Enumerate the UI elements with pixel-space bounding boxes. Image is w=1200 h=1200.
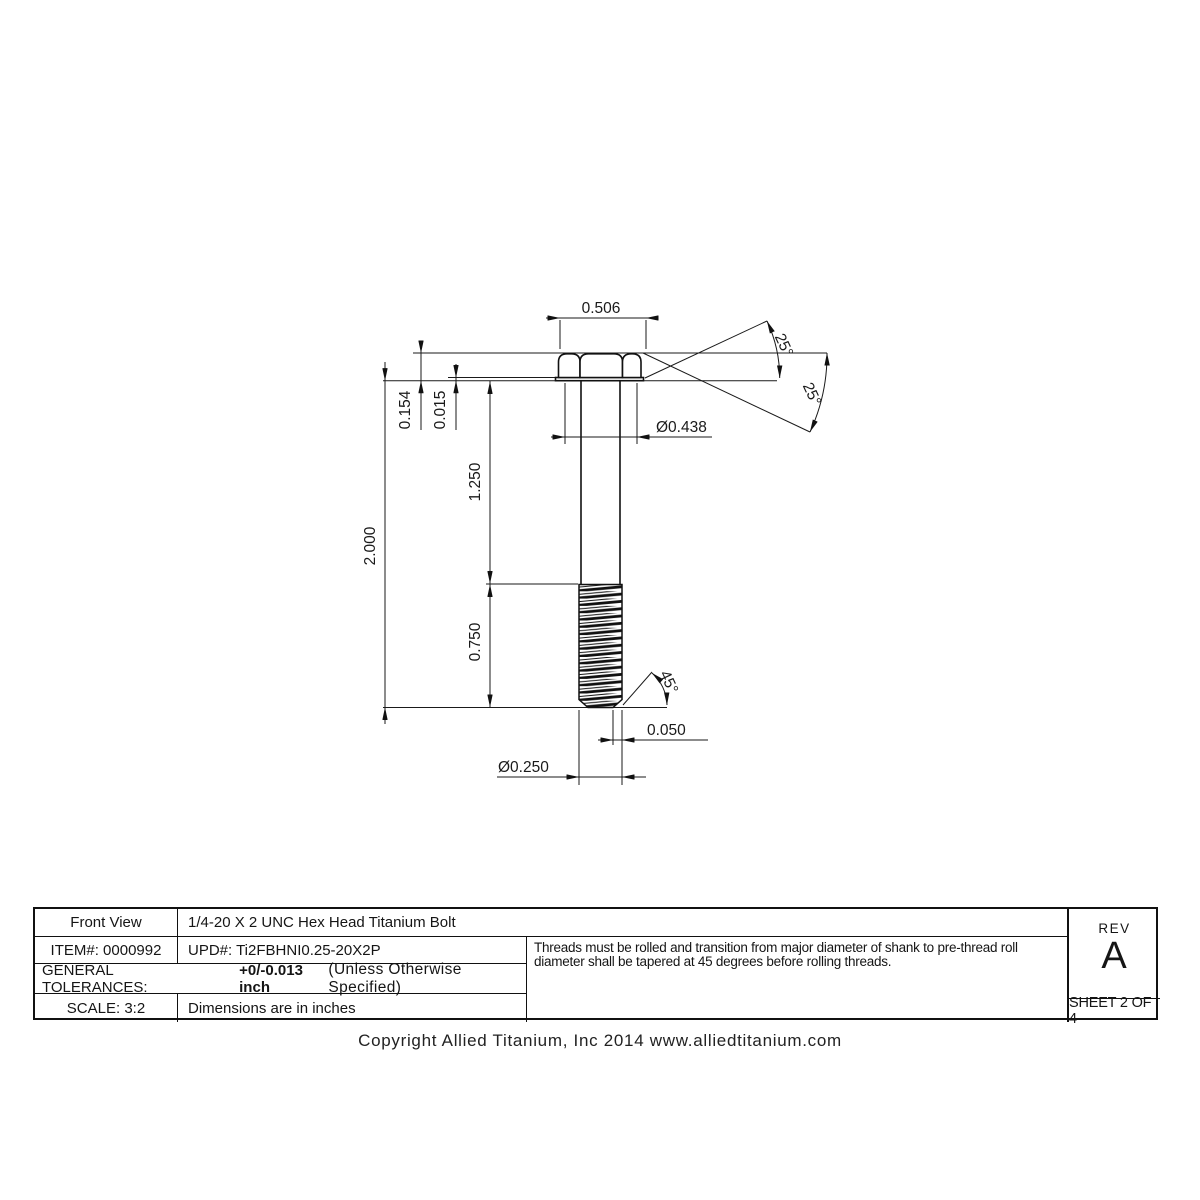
dim-text-head-width: 0.506: [582, 300, 621, 317]
dim-head-across-flats: Ø0.438: [551, 419, 712, 437]
rev-value: A: [1069, 937, 1160, 975]
tolerances-cell: GENERAL TOLERANCES: +0/-0.013 inch (Unle…: [35, 964, 527, 994]
rev-label: REV: [1069, 921, 1160, 936]
chamfer-angle-line-upper: [645, 321, 767, 378]
hex-head-facet-middle: [580, 354, 623, 378]
notes-cell: Threads must be rolled and transition fr…: [527, 937, 1067, 1022]
title-block: Front View 1/4-20 X 2 UNC Hex Head Titan…: [33, 907, 1158, 1020]
dim-head-across-corners: 0.506: [546, 300, 658, 318]
item-number-cell: ITEM#: 0000992: [35, 937, 178, 964]
sheet-number-cell: SHEET 2 OF 4: [1069, 999, 1160, 1022]
dim-shank-diameter: Ø0.250: [497, 759, 646, 777]
threaded-section: [579, 585, 622, 708]
units-cell: Dimensions are in inches: [178, 994, 527, 1022]
dim-grip-and-thread-length: 1.250 0.750: [467, 381, 490, 707]
drawing-sheet: 0.506 Ø0.438 0.154 0.015 2.000: [0, 0, 1200, 1200]
dim-overall-length: 2.000: [362, 362, 385, 724]
dim-text-chamfer-angle-1: 25°: [771, 331, 796, 359]
dim-text-grip-length: 1.250: [467, 462, 484, 501]
point-chamfer-line: [623, 672, 652, 705]
dim-text-head-height: 0.154: [397, 390, 414, 429]
dim-text-chamfer-length: 0.050: [647, 722, 686, 739]
dim-text-flats-dia: Ø0.438: [656, 419, 707, 436]
tolerances-label: GENERAL TOLERANCES:: [42, 962, 205, 996]
item-number: ITEM#: 0000992: [51, 942, 162, 959]
hex-head-facet-right: [623, 354, 642, 378]
view-label-cell: Front View: [35, 909, 178, 937]
extension-lines: [383, 320, 827, 785]
part-title: 1/4-20 X 2 UNC Hex Head Titanium Bolt: [188, 914, 456, 931]
dim-text-shank-dia: Ø0.250: [498, 759, 549, 776]
scale-cell: SCALE: 3:2: [35, 994, 178, 1022]
view-label: Front View: [70, 914, 141, 931]
tolerances-note: (Unless Otherwise Specified): [328, 961, 519, 997]
upd-number: UPD#: Ti2FBHNI0.25-20X2P: [188, 942, 381, 959]
revision-area: REV A: [1069, 909, 1160, 999]
dim-text-overall-length: 2.000: [362, 526, 379, 565]
sheet-number: SHEET 2 OF 4: [1069, 995, 1160, 1027]
units-note: Dimensions are in inches: [188, 1000, 356, 1017]
part-title-cell: 1/4-20 X 2 UNC Hex Head Titanium Bolt: [178, 909, 1067, 937]
bolt-front-view: [556, 354, 644, 708]
dim-text-thread-length: 0.750: [467, 622, 484, 661]
dim-washer-thickness: 0.015: [432, 364, 456, 430]
scale-label: SCALE: 3:2: [67, 1000, 145, 1017]
tolerances-value: +0/-0.013 inch: [239, 962, 328, 996]
dim-point-chamfer-angle: 45°: [623, 668, 681, 705]
dim-text-washer-thickness: 0.015: [432, 391, 449, 430]
copyright-text: Copyright Allied Titanium, Inc 2014 www.…: [0, 1031, 1200, 1051]
hex-head-facet-left: [559, 354, 581, 378]
notes-text: Threads must be rolled and transition fr…: [534, 941, 1060, 968]
dim-head-chamfer-angles: 25° 25°: [643, 321, 827, 432]
dim-point-chamfer-length: 0.050: [598, 722, 708, 740]
revision-box: REV A SHEET 2 OF 4: [1067, 909, 1160, 1022]
dim-text-point-chamfer-angle: 45°: [656, 668, 681, 696]
dim-head-height: 0.154: [397, 341, 421, 430]
